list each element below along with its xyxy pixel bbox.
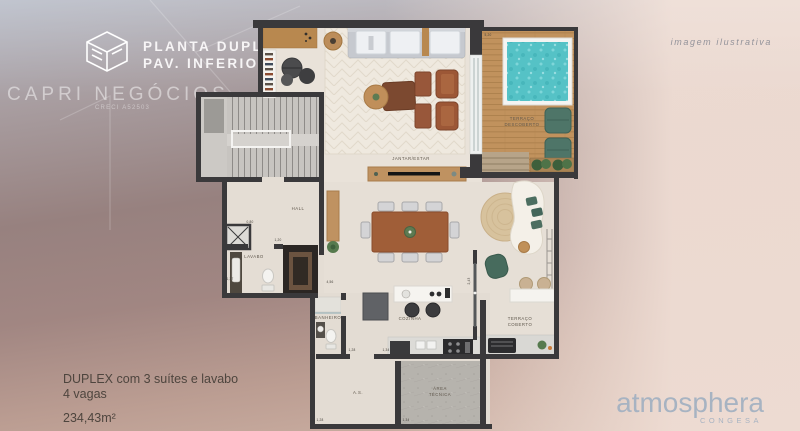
wood-stool bbox=[519, 242, 530, 253]
floor-plan: HALL LAVABO JANTAR/ESTAR COZINHA BANHEIR… bbox=[190, 5, 645, 430]
label-terraco-descoberto-2: DESCOBERTO bbox=[505, 122, 540, 127]
cube-logo-icon bbox=[84, 30, 130, 79]
grill bbox=[488, 338, 516, 353]
marketing-board: PLANTA DUPLEX PAV. INFERIOR CAPRI NEGÓCI… bbox=[0, 0, 800, 431]
label-area-tecnica-2: TÉCNICA bbox=[429, 392, 451, 397]
sliding-door bbox=[470, 55, 482, 154]
illustrative-note: imagem ilustrativa bbox=[671, 37, 772, 47]
door-post bbox=[470, 152, 482, 178]
label-hall: HALL bbox=[292, 206, 305, 211]
door-post bbox=[470, 28, 482, 57]
dim-area-tecnica: 1,34 bbox=[402, 418, 409, 422]
terrace-sliding-door bbox=[474, 263, 477, 327]
tv bbox=[388, 172, 440, 176]
dim-as: 1,28 bbox=[316, 418, 323, 422]
bath-toilet bbox=[326, 330, 336, 343]
dim-terraco-door: 2,43 bbox=[467, 277, 471, 284]
dim-lavabo: 1,37 bbox=[226, 277, 233, 281]
staircase bbox=[201, 95, 319, 179]
fridge bbox=[363, 293, 388, 320]
label-cozinha: COZINHA bbox=[399, 316, 422, 321]
sofa bbox=[348, 24, 465, 58]
label-terraco-coberto-1: TERRAÇO bbox=[508, 316, 533, 321]
dim-hall-passage: 1,20 bbox=[274, 238, 281, 242]
cabinet bbox=[327, 191, 339, 241]
plant bbox=[538, 341, 547, 350]
dim-corridor: 4,56 bbox=[326, 280, 333, 284]
unit-area: 234,43m² bbox=[63, 411, 238, 426]
brand-creci: CRECI A52503 bbox=[95, 105, 150, 111]
oven bbox=[390, 341, 410, 354]
shower bbox=[315, 297, 341, 312]
pool bbox=[507, 42, 568, 101]
planter bbox=[530, 158, 574, 172]
developer-logo: atmosphera CONGESA bbox=[616, 389, 764, 425]
island-sink bbox=[402, 290, 410, 298]
summary-line1: DUPLEX com 3 suítes e lavabo bbox=[63, 372, 238, 387]
dim-deck: 5,20 bbox=[484, 33, 491, 37]
label-terraco-descoberto-1: TERRAÇO bbox=[510, 116, 535, 121]
summary-line2: 4 vagas bbox=[63, 387, 238, 402]
dim-cozinha: 1,34 bbox=[382, 348, 389, 352]
label-jantar-estar: JANTAR/ESTAR bbox=[392, 156, 430, 161]
label-as: A.S. bbox=[353, 390, 363, 395]
bar-counter bbox=[510, 289, 555, 302]
label-area-tecnica-1: ÁREA bbox=[433, 386, 447, 391]
label-terraco-coberto-2: COBERTO bbox=[508, 322, 533, 327]
label-lavabo: LAVABO bbox=[244, 254, 264, 259]
stool bbox=[426, 303, 440, 317]
toilet bbox=[263, 269, 274, 283]
label-banheiro: BANHEIRO bbox=[315, 315, 342, 320]
stool bbox=[405, 303, 419, 317]
developer-name: atmosphera bbox=[616, 389, 764, 416]
unit-summary: DUPLEX com 3 suítes e lavabo 4 vagas 234… bbox=[63, 372, 238, 426]
dim-hall-door: 0,80 bbox=[246, 220, 253, 224]
dim-banheiro-door: 1,28 bbox=[348, 348, 355, 352]
